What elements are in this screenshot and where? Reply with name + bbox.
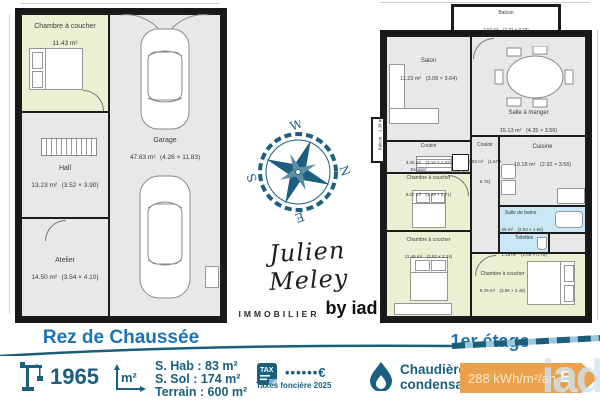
room-closet: Placard bbox=[452, 154, 469, 171]
toilet-icon bbox=[537, 237, 547, 250]
utility-meter-icon bbox=[205, 266, 219, 288]
footer-bar: 1965 m² S. Hab : 83 m² S. Sol : 174 m² T… bbox=[0, 356, 600, 400]
kitchen-stove-icon bbox=[501, 180, 516, 195]
dimension-line bbox=[597, 30, 598, 320]
tax-icon-label: TAX bbox=[260, 367, 274, 374]
flame-icon bbox=[368, 361, 394, 391]
bed-icon bbox=[29, 48, 83, 90]
construction-crane-icon bbox=[18, 361, 46, 393]
room-corridor-2: Couloir 5.93 m² (1.67 × 5.75) bbox=[471, 136, 499, 253]
room-living: Salon 11.23 m² (3.09 × 3.64) bbox=[386, 36, 471, 141]
agent-name: Julien Meley bbox=[227, 234, 390, 298]
stairs-icon bbox=[41, 138, 97, 156]
first-floor-plan: Balcon 2.57 m² (3.32 × 0.78) Balcon 1.38… bbox=[375, 6, 597, 332]
door-arc bbox=[473, 38, 494, 59]
room-kitchen: Cuisine 10.18 m² (2.92 × 3.56) bbox=[499, 136, 586, 206]
wardrobe-icon bbox=[394, 303, 452, 315]
dining-table-icon bbox=[493, 46, 577, 108]
room-garage: Garage 47.63 m² (4.26 × 11.83) bbox=[109, 14, 221, 317]
room-workshop: Atelier 14.50 m² (3.54 × 4.10) bbox=[21, 218, 109, 317]
room-label: Salle à manger 15.13 m² (4.25 × 3.56) bbox=[471, 110, 586, 139]
compass-north-label: N bbox=[336, 163, 350, 178]
bed-icon bbox=[412, 190, 446, 228]
room-balcony-top: Balcon 2.57 m² (3.32 × 0.78) bbox=[453, 6, 559, 32]
bed-icon bbox=[410, 257, 448, 301]
surface-info: S. Hab : 83 m² S. Sol : 174 m² Terrain :… bbox=[155, 360, 247, 399]
door-arc bbox=[448, 175, 469, 196]
room-landing bbox=[549, 233, 586, 253]
bed-icon bbox=[527, 261, 575, 305]
iad-watermark: iad bbox=[542, 356, 600, 396]
car-icon bbox=[133, 172, 197, 302]
room-bedroom-1: Chambre à coucher 9.27 m² (3.49 × 2.71) bbox=[386, 173, 471, 231]
stairs-icon bbox=[416, 156, 452, 172]
tax-label: Taxes foncière 2025 bbox=[256, 381, 331, 390]
door-arc bbox=[83, 90, 104, 111]
agent-subtitle: IMMOBILIER bbox=[238, 309, 319, 319]
surface-terrain: Terrain : 600 m² bbox=[155, 386, 247, 399]
room-hall: Hall 13.23 m² (3.52 × 3.90) bbox=[21, 112, 109, 218]
agent-signature: Julien Meley IMMOBILIER by iad bbox=[228, 238, 388, 319]
door-arc bbox=[475, 255, 496, 276]
room-corridor-1: Couloir 3.45 m² (3.10 × 1.32) Escalier P… bbox=[386, 141, 471, 173]
room-bedroom-3: Chambre à coucher 9.76 m² (3.96 × 2.49) bbox=[471, 253, 586, 317]
room-dining: Salle à manger 15.13 m² (4.25 × 3.56) bbox=[471, 36, 586, 136]
room-bathroom: Salle de bains 4.08 m² (2.93 × 1.65) bbox=[499, 206, 586, 233]
agent-byline: by iad bbox=[325, 298, 377, 319]
room-label: Atelier 14.50 m² (3.54 × 4.10) bbox=[21, 256, 109, 286]
ground-floor-plan: Chambre à coucher 11.43 m² Hall 13.23 m²… bbox=[15, 8, 227, 323]
construction-year: 1965 bbox=[50, 364, 99, 390]
room-bedroom-gf: Chambre à coucher 11.43 m² bbox=[21, 14, 109, 112]
room-label: Garage 47.63 m² (4.26 × 11.83) bbox=[109, 136, 221, 166]
dimension-line bbox=[20, 3, 220, 4]
kitchen-counter-icon bbox=[557, 188, 585, 204]
dimension-line bbox=[9, 14, 10, 314]
door-arc bbox=[45, 220, 66, 241]
room-label: Hall 13.23 m² (3.52 × 3.90) bbox=[21, 164, 109, 194]
room-balcony-left: Balcon 1.38 m² bbox=[372, 118, 384, 162]
bathtub-icon bbox=[555, 211, 583, 228]
compass-south-label: S bbox=[246, 172, 260, 185]
compass-east-label: E bbox=[293, 209, 306, 224]
car-icon bbox=[135, 26, 195, 132]
kitchen-sink-icon bbox=[501, 164, 516, 179]
tax-amount: ••••••€ bbox=[285, 365, 327, 380]
room-bedroom-2: Chambre à coucher 11.46 m² (3.53 × 3.34) bbox=[386, 231, 471, 317]
compass-west-label: W bbox=[288, 120, 305, 134]
square-meter-label: m² bbox=[121, 370, 138, 385]
dimension-line bbox=[380, 2, 590, 3]
floorplan-page: { "colors": {"teal": "#1A5F7D", "title_b… bbox=[0, 0, 600, 400]
room-toilet: Toilettes 1.18 m² (1.45 × 0.79) bbox=[499, 233, 549, 253]
square-meter-icon: m² bbox=[112, 361, 148, 393]
compass-rose: W N S E bbox=[246, 120, 350, 224]
